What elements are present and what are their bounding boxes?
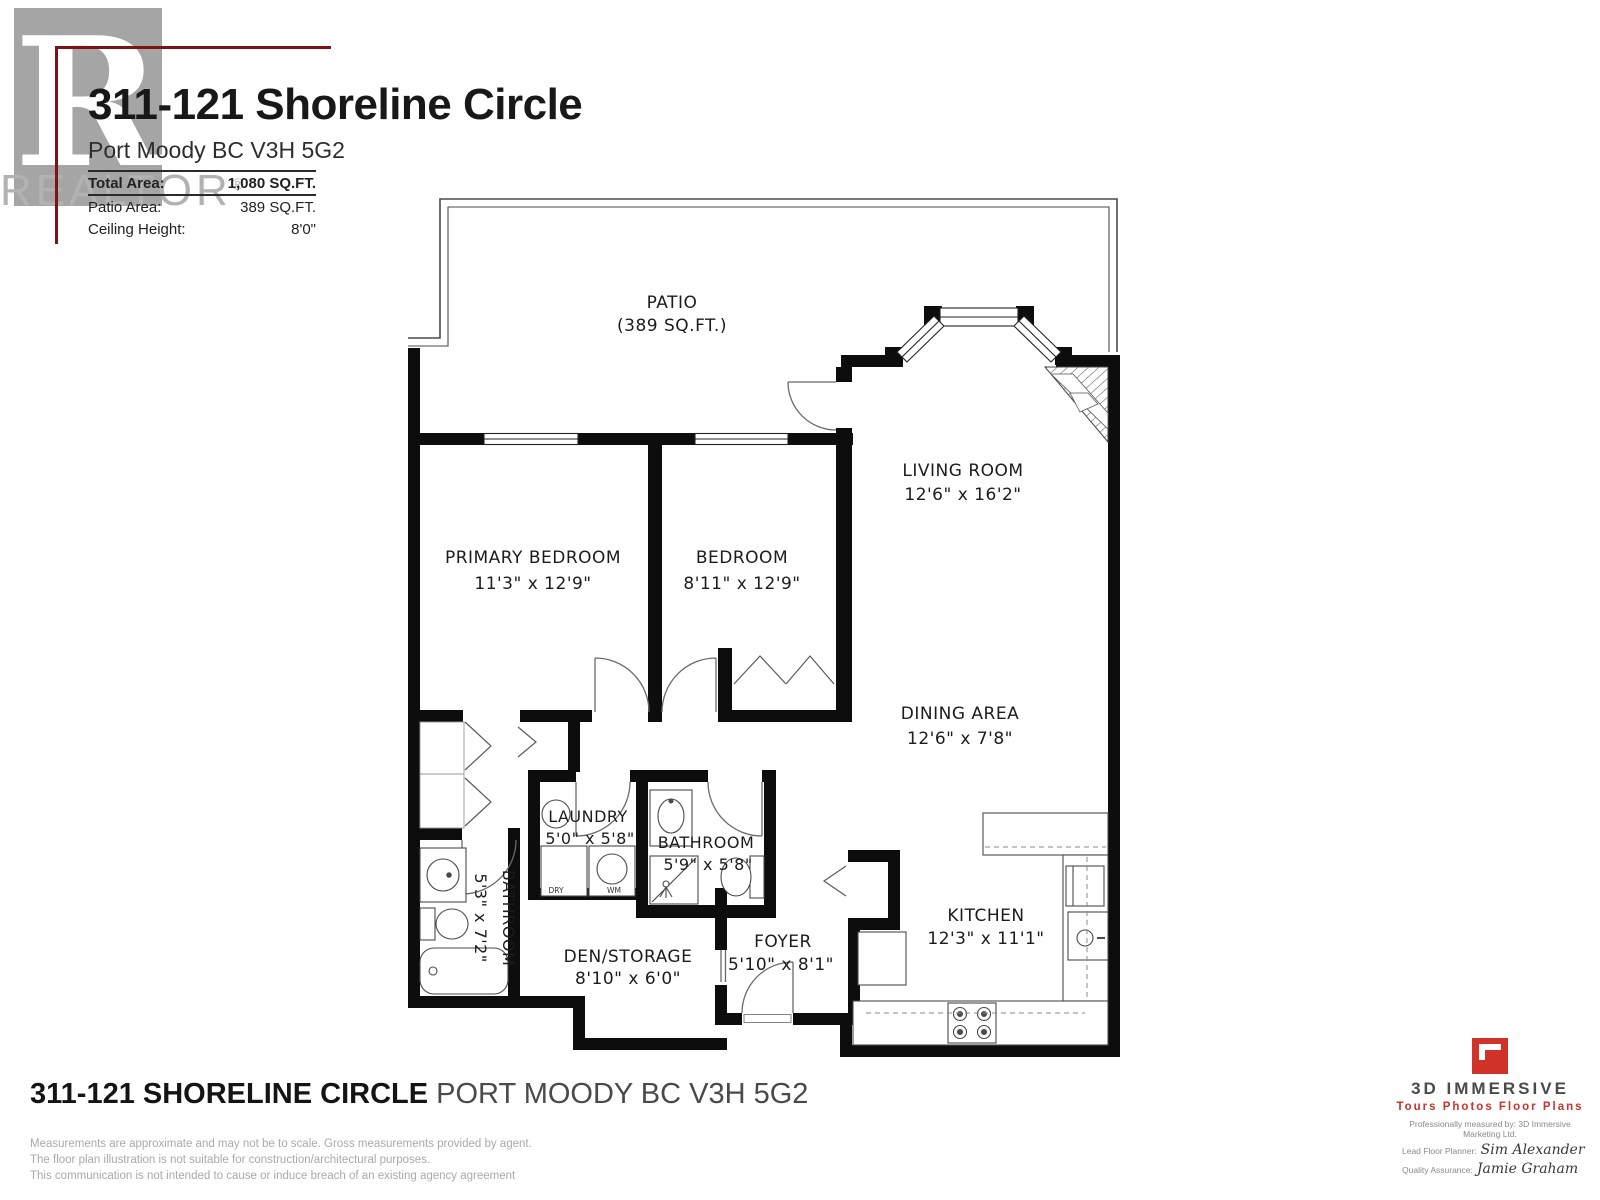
- disclaimer-line-1: Measurements are approximate and may not…: [30, 1138, 532, 1150]
- room-label-primary-bedroom: PRIMARY BEDROOM: [445, 548, 621, 568]
- room-dims-bedroom: 8'11" x 12'9": [683, 574, 800, 594]
- toilet-bowl: [436, 909, 468, 939]
- room-label-bathroom-side: BATHROOM: [499, 870, 518, 967]
- qa-signature: Jamie Graham: [1477, 1161, 1578, 1177]
- floor-plan-page: R REALTOR® 311-121 Shoreline Circle Port…: [0, 0, 1600, 1200]
- room-label-den-storage: DEN/STORAGE: [564, 947, 693, 967]
- bedroom-closet-door-2: [786, 656, 834, 684]
- room-label-kitchen: KITCHEN: [947, 906, 1024, 926]
- washer-label: WM: [607, 886, 621, 895]
- windows: [484, 308, 1061, 445]
- branding-name: 3D IMMERSIVE: [1390, 1079, 1590, 1099]
- bathroom-side-fixtures: [420, 848, 508, 994]
- foyer-closet-door: [824, 866, 846, 896]
- patio-outline: [408, 199, 1117, 352]
- disclaimer-line-2: The floor plan illustration is not suita…: [30, 1154, 430, 1166]
- room-label-foyer: FOYER: [754, 932, 812, 952]
- bedroom-closet-door-1: [734, 656, 786, 684]
- page-title: 311-121 Shoreline Circle: [88, 80, 582, 130]
- stat-row-patio-area: Patio Area: 389 SQ.FT.: [88, 196, 316, 218]
- qa-row: Quality Assurance:Jamie Graham: [1390, 1161, 1590, 1177]
- hall-closet-door-1: [465, 722, 491, 770]
- toilet-tank: [420, 908, 435, 940]
- room-label-bedroom: BEDROOM: [696, 548, 788, 568]
- planner-row: Lead Floor Planner:Sim Alexander: [1390, 1142, 1590, 1158]
- room-dims-den-storage: 8'10" x 6'0": [575, 969, 681, 989]
- 3d-immersive-logo-icon: [1472, 1038, 1508, 1074]
- entry-door-leaf: [744, 1015, 791, 1023]
- sink: [658, 799, 684, 833]
- tub-faucet: [429, 967, 437, 975]
- fireplace-hatch: [1045, 367, 1108, 442]
- room-dims-foyer: 5'10" x 8'1": [728, 955, 834, 975]
- room-dims-primary-bedroom: 11'3" x 12'9": [474, 574, 591, 594]
- page-subtitle-address: Port Moody BC V3H 5G2: [88, 137, 345, 164]
- room-label-living-room: LIVING ROOM: [902, 461, 1023, 481]
- counter-top: [983, 813, 1108, 855]
- footer-address-bold: 311-121 SHORELINE CIRCLE: [30, 1078, 428, 1110]
- hall-closet-door-3: [518, 727, 536, 757]
- footer-address-rest: PORT MOODY BC V3H 5G2: [428, 1078, 808, 1110]
- dryer-label: DRY: [548, 886, 564, 895]
- branding-badge: 3D IMMERSIVE Tours Photos Floor Plans Pr…: [1390, 1038, 1590, 1177]
- shower-drain: [663, 881, 669, 887]
- bedroom-door: [662, 658, 716, 712]
- room-dims-bathroom-side: 5'3" x 7'2": [471, 873, 490, 962]
- room-dims-living-room: 12'6" x 16'2": [904, 485, 1021, 505]
- room-label-laundry: LAUNDRY: [548, 807, 628, 826]
- planner-signature: Sim Alexander: [1481, 1142, 1585, 1158]
- hall-closet-door-2: [465, 778, 491, 826]
- room-dims-patio: (389 SQ.FT.): [617, 316, 727, 336]
- bathroom-main-door: [708, 782, 762, 836]
- washer-drum: [597, 854, 627, 884]
- patio-door: [788, 382, 836, 430]
- primary-bedroom-door: [595, 658, 649, 712]
- room-label-bathroom-main: BATHROOM: [658, 833, 755, 852]
- room-dims-laundry: 5'0" x 5'8": [545, 829, 634, 848]
- disclaimer-line-3: This communication is not intended to ca…: [30, 1170, 515, 1182]
- room-dims-kitchen: 12'3" x 11'1": [927, 929, 1044, 949]
- stat-row-ceiling-height: Ceiling Height: 8'0": [88, 218, 316, 240]
- room-label-dining-area: DINING AREA: [901, 704, 1019, 724]
- area-stats-table: Total Area: 1,080 SQ.FT. Patio Area: 389…: [88, 170, 316, 240]
- kitchen-sink: [1077, 930, 1093, 946]
- den-door-leaf: [721, 950, 726, 982]
- sink: [427, 859, 459, 891]
- fridge: [1066, 866, 1104, 906]
- footer-address: 311-121 SHORELINE CIRCLE PORT MOODY BC V…: [30, 1078, 808, 1111]
- branding-tagline: Tours Photos Floor Plans: [1390, 1101, 1590, 1113]
- hall-closet-outline: [420, 722, 464, 828]
- stat-row-total-area: Total Area: 1,080 SQ.FT.: [88, 170, 316, 196]
- room-dims-bathroom-main: 5'9" x 5'8": [663, 855, 752, 874]
- room-dims-dining-area: 12'6" x 7'8": [907, 729, 1013, 749]
- room-label-patio: PATIO: [647, 293, 698, 313]
- branding-measured-by: Professionally measured by: 3D Immersive…: [1390, 1119, 1590, 1139]
- counter-west: [858, 932, 906, 985]
